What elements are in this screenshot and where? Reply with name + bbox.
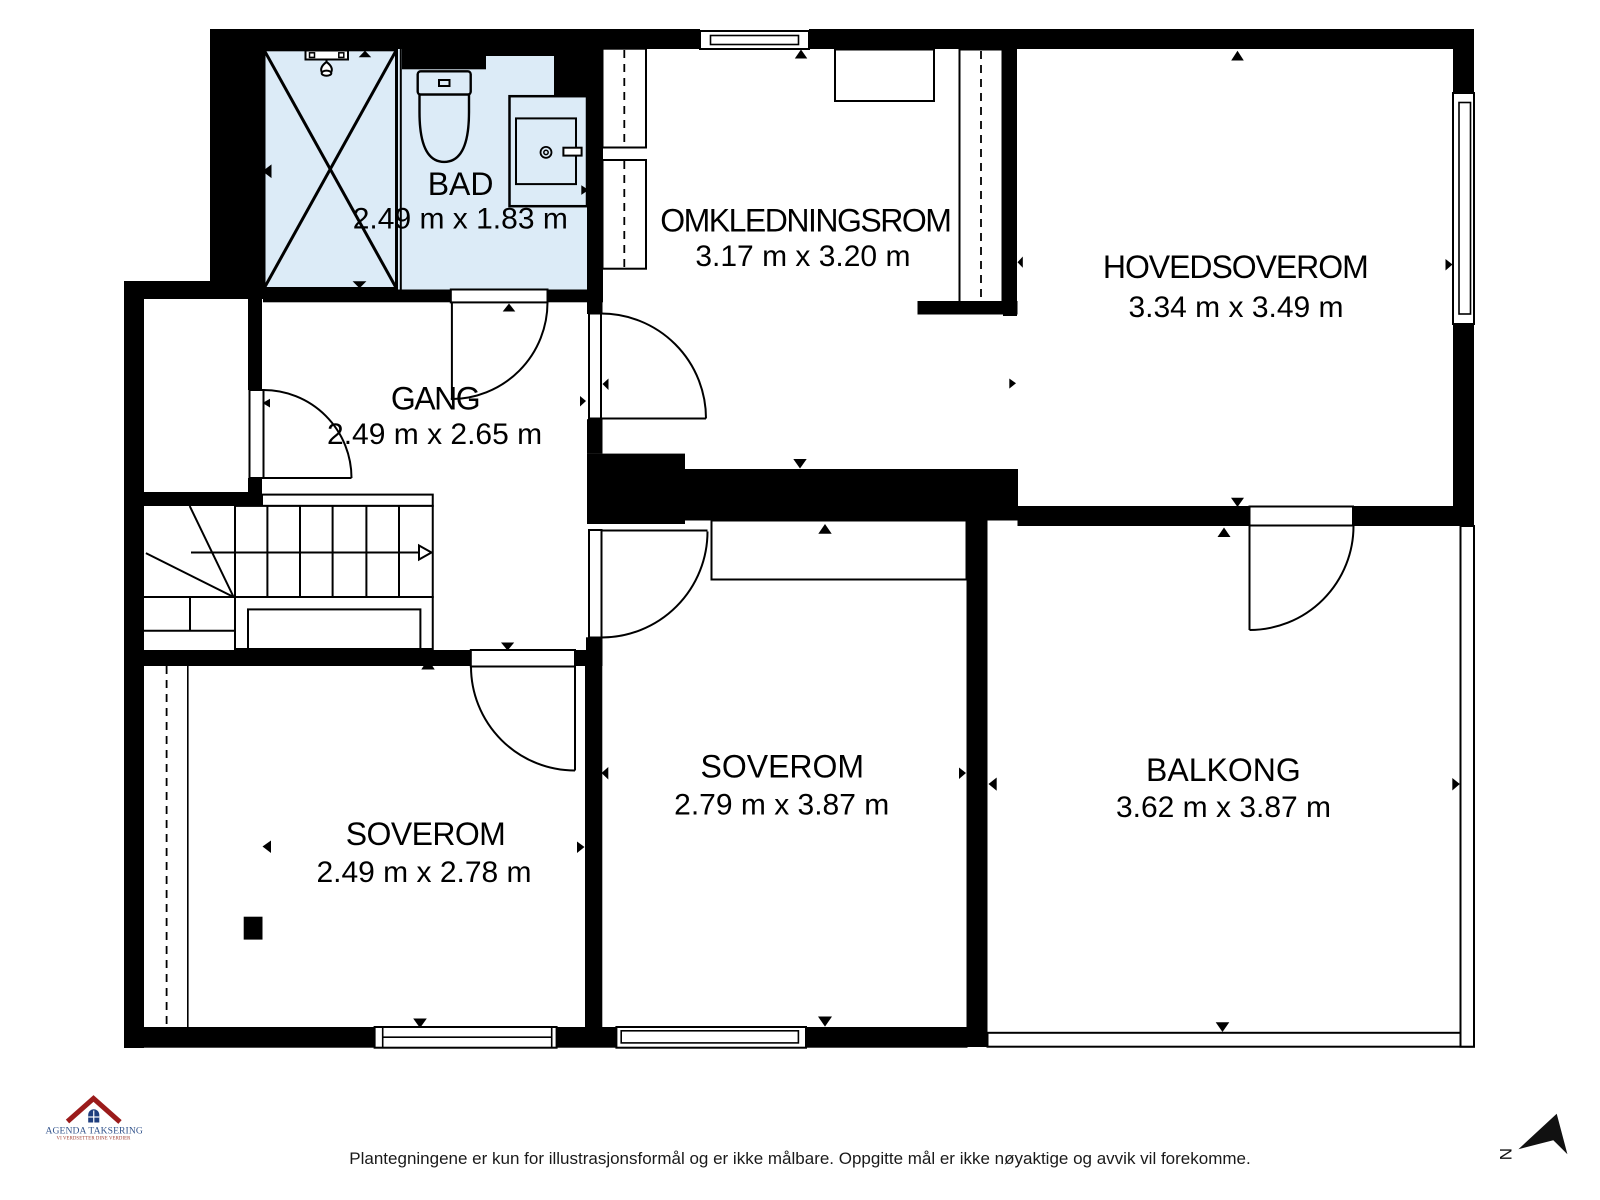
svg-text:AGENDA TAKSERING: AGENDA TAKSERING — [45, 1126, 142, 1137]
svg-text:N: N — [1496, 1148, 1515, 1160]
svg-text:BAD: BAD — [428, 166, 494, 202]
svg-text:3.62 m x 3.87 m: 3.62 m x 3.87 m — [1116, 791, 1331, 824]
svg-text:2.79 m x 3.87 m: 2.79 m x 3.87 m — [674, 788, 889, 821]
svg-text:3.34 m x 3.49 m: 3.34 m x 3.49 m — [1128, 291, 1343, 324]
svg-text:HOVEDSOVEROM: HOVEDSOVEROM — [1103, 249, 1368, 285]
svg-text:2.49 m x 2.78 m: 2.49 m x 2.78 m — [316, 856, 531, 889]
svg-text:OMKLEDNINGSROM: OMKLEDNINGSROM — [660, 203, 950, 239]
svg-text:3.17 m x 3.20 m: 3.17 m x 3.20 m — [695, 240, 910, 273]
svg-text:VI VERDSETTER DINE VERDIER: VI VERDSETTER DINE VERDIER — [57, 1136, 132, 1141]
svg-text:Plantegningene er kun for illu: Plantegningene er kun for illustrasjonsf… — [349, 1149, 1250, 1168]
svg-text:2.49 m x 1.83 m: 2.49 m x 1.83 m — [353, 202, 568, 235]
svg-text:2.49 m x 2.65 m: 2.49 m x 2.65 m — [327, 418, 542, 451]
svg-text:BALKONG: BALKONG — [1146, 752, 1301, 788]
svg-text:SOVEROM: SOVEROM — [701, 749, 865, 785]
svg-text:GANG: GANG — [391, 380, 479, 416]
svg-text:SOVEROM: SOVEROM — [346, 816, 505, 852]
